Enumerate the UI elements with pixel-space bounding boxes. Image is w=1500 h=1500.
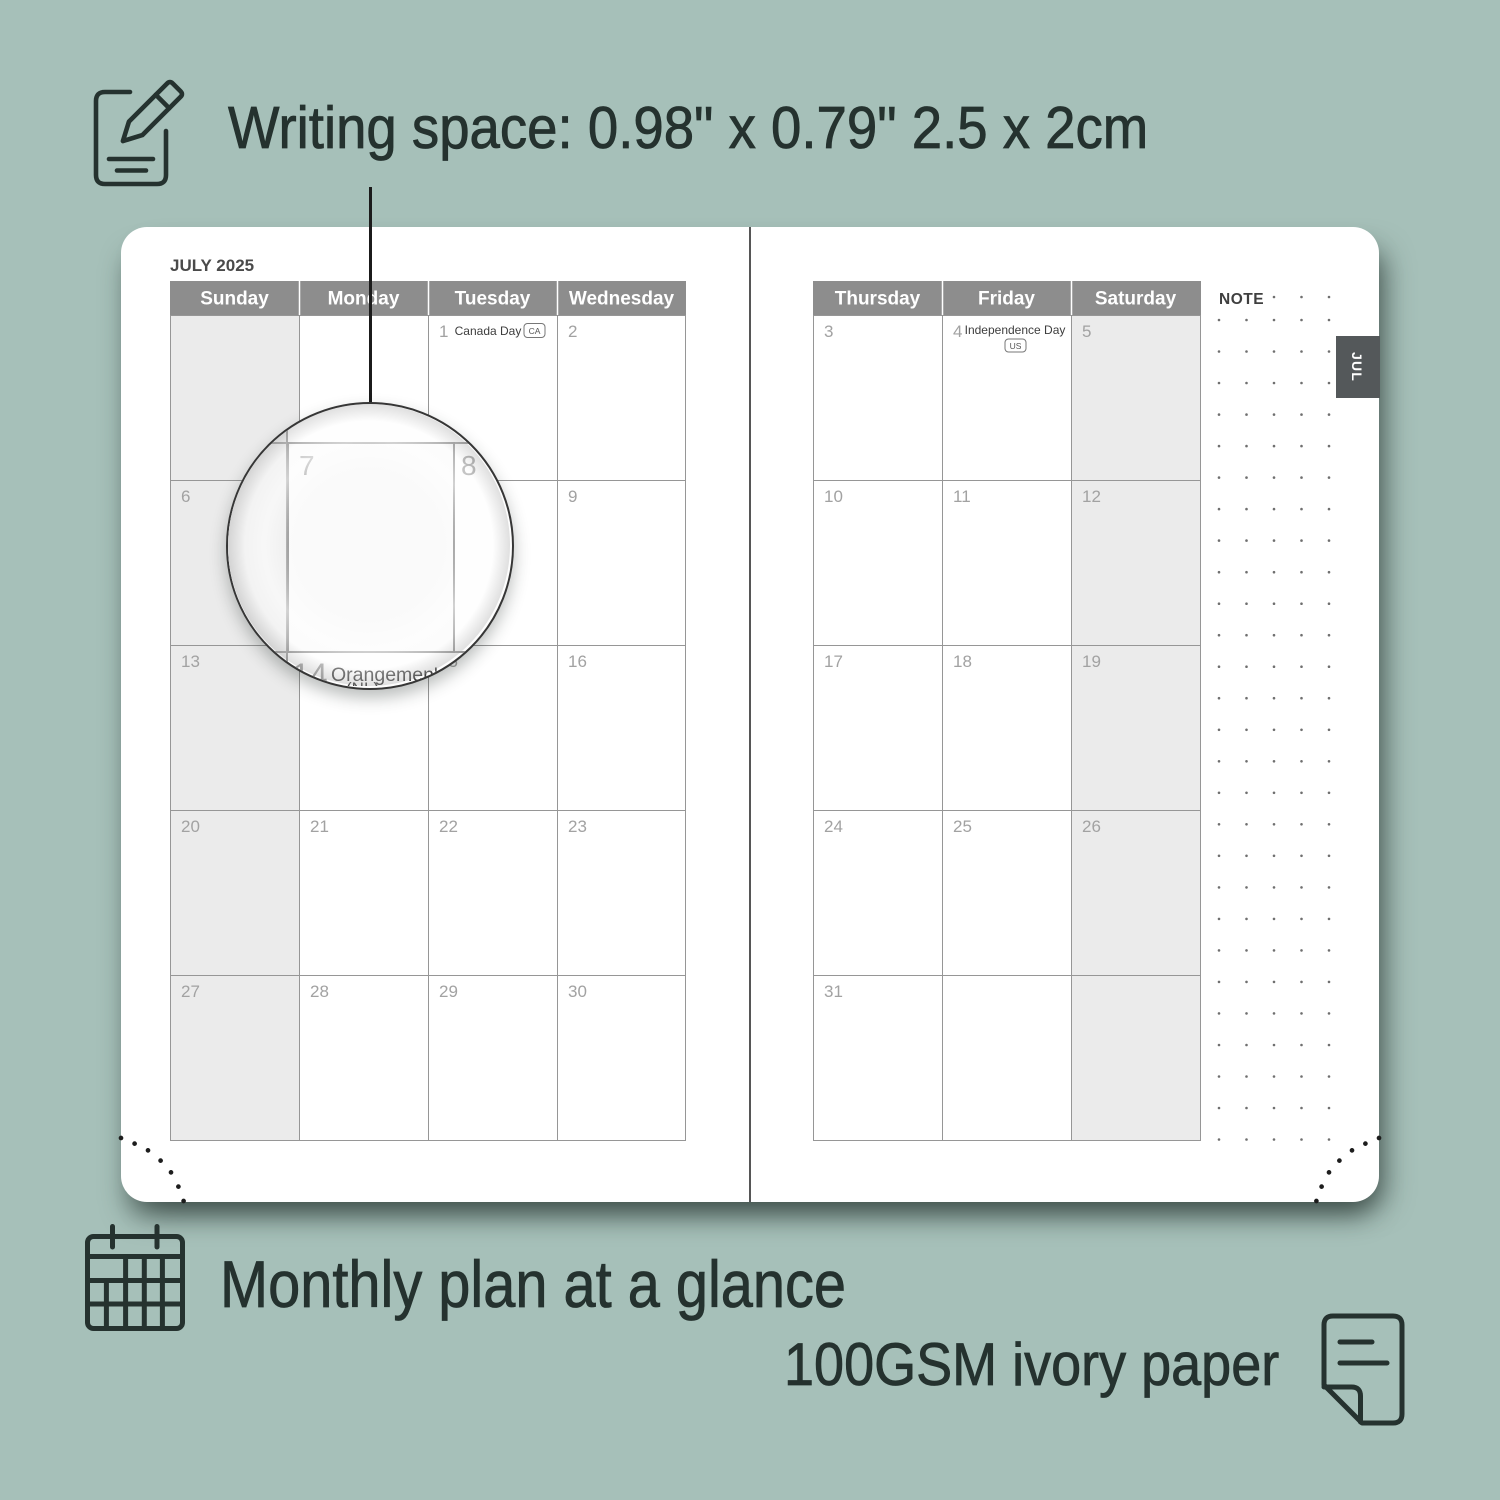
svg-text:10: 10 [824,487,843,506]
svg-text:9: 9 [568,487,577,506]
svg-text:23: 23 [568,817,587,836]
svg-text:28: 28 [310,982,329,1001]
svg-text:30: 30 [568,982,587,1001]
svg-text:19: 19 [1082,652,1101,671]
svg-text:5: 5 [1082,322,1091,341]
svg-text:Thursday: Thursday [835,289,921,310]
svg-text:Sunday: Sunday [200,289,269,310]
svg-text:22: 22 [439,817,458,836]
svg-text:Wednesday: Wednesday [569,289,675,310]
svg-text:Friday: Friday [978,289,1035,310]
svg-text:CA: CA [529,326,541,336]
svg-text:11: 11 [953,487,971,506]
svg-text:13: 13 [181,652,200,671]
svg-text:Monday: Monday [328,289,400,310]
svg-text:3: 3 [824,322,833,341]
svg-text:JUL: JUL [1349,352,1365,382]
svg-text:27: 27 [181,982,200,1001]
svg-text:17: 17 [824,652,843,671]
svg-text:NOTE: NOTE [1219,291,1264,308]
svg-text:Saturday: Saturday [1095,289,1177,310]
svg-text:Tuesday: Tuesday [455,289,531,310]
svg-text:16: 16 [568,652,587,671]
svg-text:Independence Day: Independence Day [965,323,1066,337]
svg-text:29: 29 [439,982,458,1001]
svg-text:21: 21 [310,817,329,836]
svg-text:2: 2 [568,322,577,341]
svg-text:1: 1 [439,322,448,341]
svg-text:12: 12 [1082,487,1101,506]
svg-text:31: 31 [824,982,843,1001]
svg-text:Canada Day: Canada Day [455,324,522,338]
svg-text:4: 4 [953,322,962,341]
svg-text:24: 24 [824,817,843,836]
svg-text:20: 20 [181,817,200,836]
svg-text:26: 26 [1082,817,1101,836]
svg-text:18: 18 [953,652,972,671]
svg-text:25: 25 [953,817,972,836]
svg-text:US: US [1010,341,1022,351]
svg-text:6: 6 [181,487,190,506]
